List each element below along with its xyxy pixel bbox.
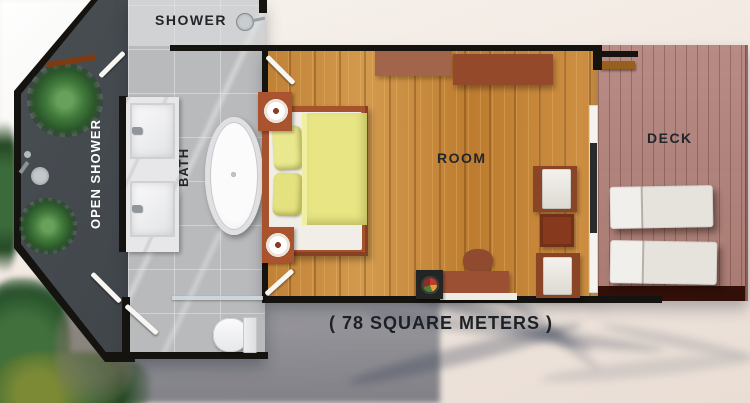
decor-tray-plate-icon	[421, 276, 439, 294]
bed-pillow	[272, 173, 302, 217]
shower-head-icon	[236, 13, 254, 31]
area-caption: ( 78 SQUARE METERS )	[306, 313, 576, 334]
side-table	[540, 214, 574, 247]
outdoor-shower-head-icon	[31, 167, 49, 185]
faucet-icon	[132, 127, 142, 134]
label-deck: DECK	[647, 130, 693, 146]
sun-lounger	[610, 240, 718, 285]
floor-plan-scene: SHOWER OPEN SHOWER BATH ROOM DECK ( 78 S…	[0, 0, 750, 403]
wall-shower-bottom	[170, 45, 265, 51]
glass-partition	[172, 296, 263, 300]
wall-console	[375, 51, 452, 76]
armchair-cushion	[543, 257, 572, 295]
wall-room-topright-v	[593, 45, 602, 70]
toilet-tank	[243, 317, 257, 353]
bed-duvet	[302, 113, 367, 225]
bedside-decor-icon	[263, 98, 289, 124]
deck-beam	[600, 61, 635, 69]
label-open-shower: OPEN SHOWER	[88, 104, 103, 244]
palm-shadow	[540, 349, 750, 388]
bedside-decor-icon	[265, 232, 291, 258]
glass-door-panel	[590, 143, 597, 233]
palm-plant	[19, 198, 77, 254]
wall-top-nub	[259, 0, 267, 13]
bathtub-drain	[231, 172, 236, 177]
wall-bath-bottom	[106, 352, 268, 359]
wall-console	[453, 54, 553, 85]
desk-mat	[440, 293, 517, 300]
desk-chair	[463, 249, 493, 273]
bed-pillow	[272, 125, 303, 170]
wall-room-topright-h	[593, 51, 638, 57]
label-shower: SHOWER	[155, 12, 227, 28]
faucet-icon	[132, 205, 142, 212]
armchair-cushion	[542, 169, 571, 209]
label-bath: BATH	[176, 137, 191, 197]
sun-lounger	[610, 185, 714, 229]
outdoor-shower-knob-icon	[24, 151, 31, 158]
label-room: ROOM	[437, 150, 487, 166]
